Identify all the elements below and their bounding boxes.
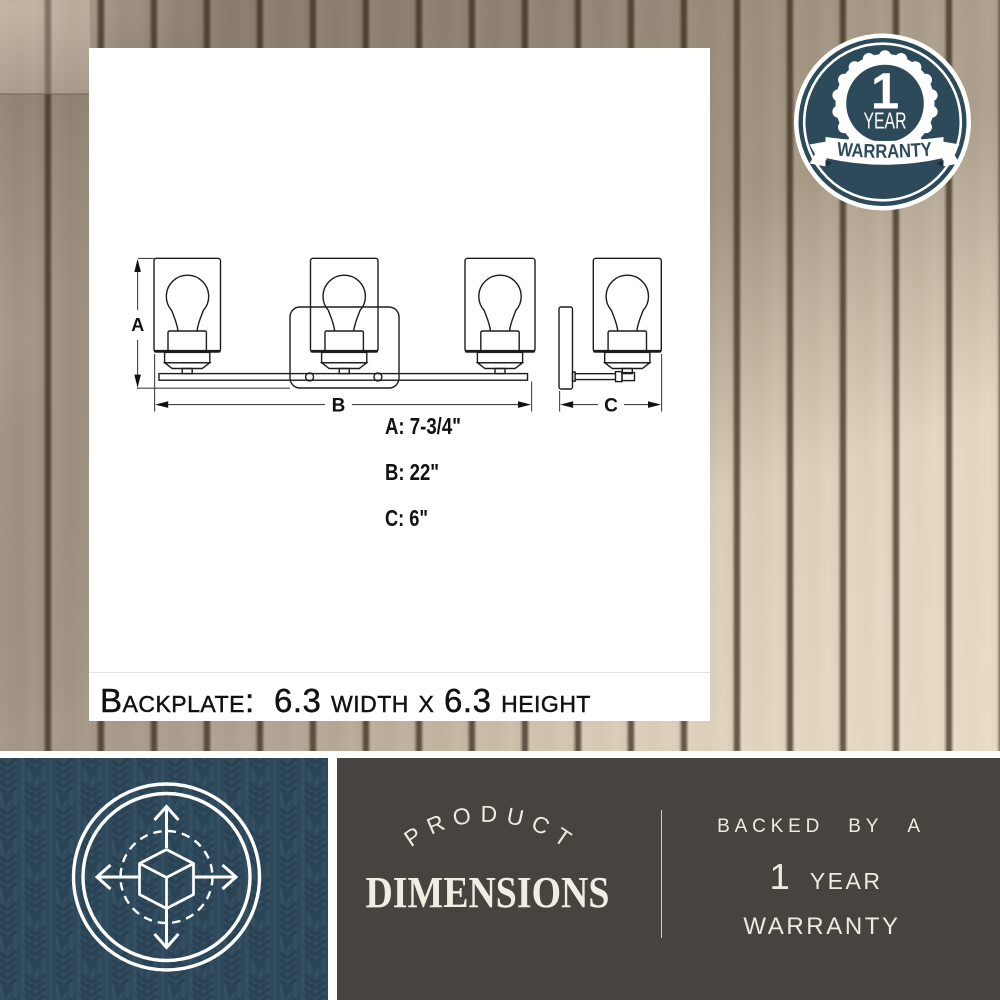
svg-text:PRODUCT: PRODUCT [399, 800, 576, 851]
svg-text:YEAR: YEAR [864, 108, 907, 134]
svg-text:WARRANTY: WARRANTY [836, 139, 933, 163]
